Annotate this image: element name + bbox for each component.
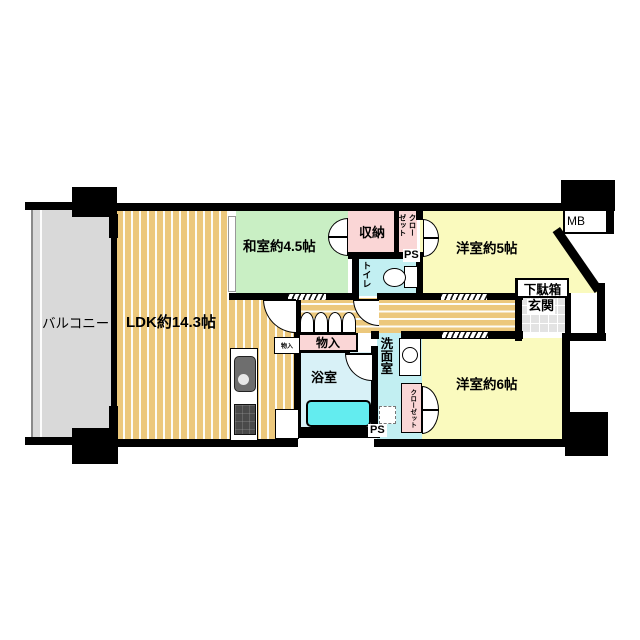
wall-balcony-bottom [25, 437, 77, 445]
wall-unit-bottom-west [112, 439, 298, 447]
pipe-space-lower-label: PS [368, 424, 387, 437]
shoe-cabinet-label: 下駄箱 [524, 279, 562, 298]
wall-entrance-step [565, 293, 571, 341]
wall-balcony-top [25, 202, 77, 210]
balcony-label: バルコニー [42, 316, 109, 332]
closet-upper-label: クロー ゼット [397, 214, 417, 244]
folding-door-panel-4 [342, 312, 356, 333]
japanese-room-label: 和室約4.5帖 [243, 239, 316, 255]
western-room-5-label: 洋室約5帖 [456, 241, 518, 257]
sliding-door-western-room-6 [442, 332, 488, 338]
closet-lower-label: クローゼット [408, 389, 415, 428]
shoe-cabinet-box: 下駄箱 [516, 278, 569, 298]
wall-toilet-left [352, 252, 359, 300]
meter-box: MB [563, 208, 608, 234]
wall-notch-top [109, 214, 118, 238]
small-storage-label: 物入 [281, 341, 293, 350]
floor-plan: MB 下駄箱 物入 物入 クローゼット バルコニー LDK [0, 0, 640, 640]
refrigerator-space [275, 409, 299, 439]
folding-door-panel-2 [314, 312, 328, 333]
wall-entrance-right [597, 283, 605, 341]
sliding-door-western-room-5 [441, 294, 487, 300]
closet-lower-box: クローゼット [401, 383, 422, 433]
folding-door-panel-1 [300, 312, 314, 333]
entrance-label: 玄関 [527, 299, 555, 314]
pillar-bottom-right [565, 412, 608, 456]
bathtub [306, 400, 371, 427]
bathroom-label: 浴室 [311, 371, 337, 386]
toilet-label: トイレ [361, 261, 371, 297]
wall-western5-left-stub [416, 211, 423, 220]
pillar-bottom-left [72, 428, 118, 464]
ldk-label: LDK約14.3帖 [126, 314, 216, 331]
pillar-top-left [72, 187, 117, 217]
wall-unit-bottom-east [374, 439, 570, 447]
pipe-space-dashed-box [379, 406, 396, 424]
toilet-tank [404, 266, 418, 288]
western-room-6-label: 洋室約6帖 [456, 377, 518, 393]
wall-unit-top [112, 203, 565, 211]
pillar-top-right [561, 180, 615, 211]
storage-label: 収納 [359, 226, 385, 241]
meter-box-label: MB [567, 214, 585, 228]
pipe-space-upper-label: PS [403, 249, 420, 262]
hall-storage-box: 物入 [298, 333, 358, 352]
wall-bath-washroom-divider [371, 346, 378, 431]
folding-door-panel-3 [328, 312, 342, 333]
toilet-bowl [383, 268, 406, 287]
washroom-label: 洗面室 [378, 337, 392, 387]
hall-storage-label: 物入 [316, 334, 340, 351]
small-storage-box: 物入 [274, 337, 300, 354]
japanese-room-sliding-door [228, 216, 236, 292]
washbasin-bowl [402, 347, 418, 363]
kitchen-sink-basin [238, 374, 249, 385]
kitchen-stove [234, 404, 256, 435]
